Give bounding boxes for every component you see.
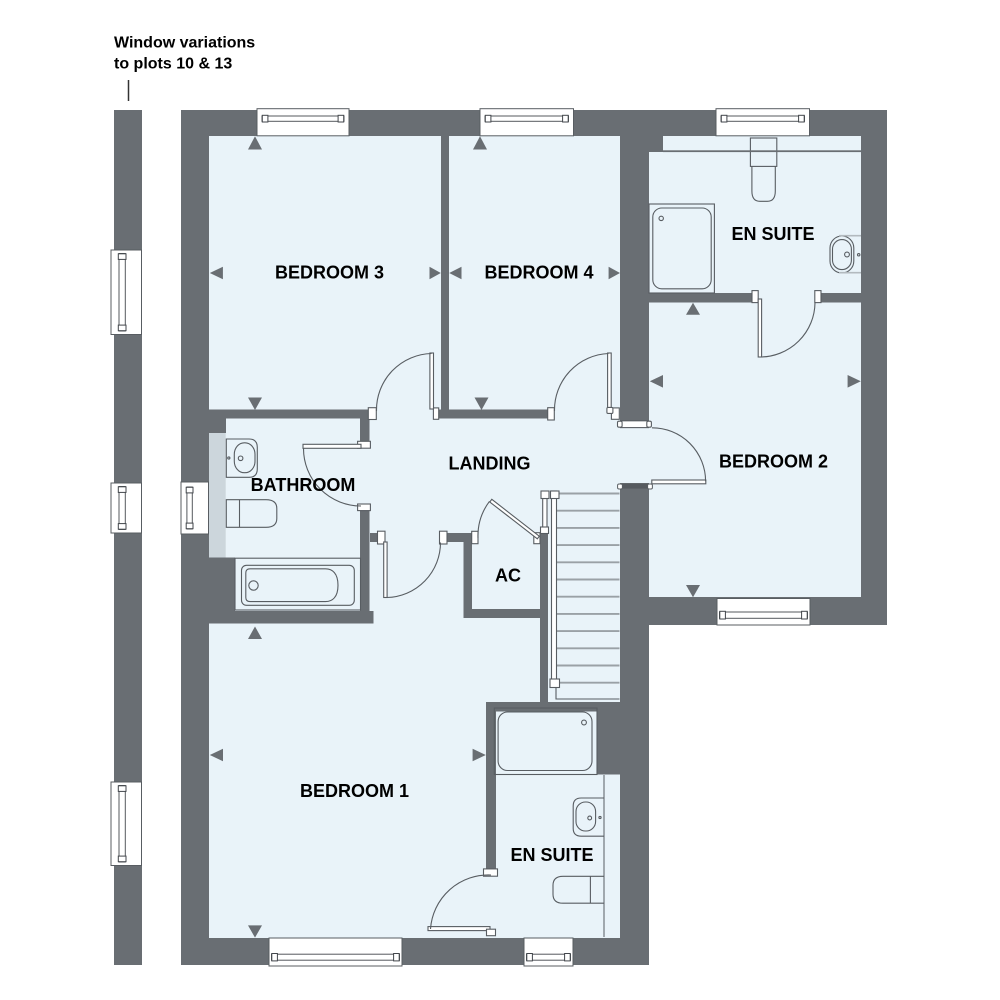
svg-text:LANDING: LANDING [449, 454, 531, 474]
svg-text:EN SUITE: EN SUITE [731, 224, 814, 244]
svg-text:Window variations: Window variations [114, 35, 255, 52]
svg-text:BEDROOM 4: BEDROOM 4 [484, 263, 593, 283]
svg-text:to plots 10 & 13: to plots 10 & 13 [114, 56, 232, 73]
svg-text:BEDROOM 1: BEDROOM 1 [300, 781, 409, 801]
svg-text:AC: AC [495, 566, 521, 586]
svg-text:BEDROOM 2: BEDROOM 2 [719, 452, 828, 472]
svg-text:BEDROOM 3: BEDROOM 3 [275, 263, 384, 283]
svg-text:BATHROOM: BATHROOM [251, 475, 356, 495]
svg-text:EN SUITE: EN SUITE [510, 845, 593, 865]
